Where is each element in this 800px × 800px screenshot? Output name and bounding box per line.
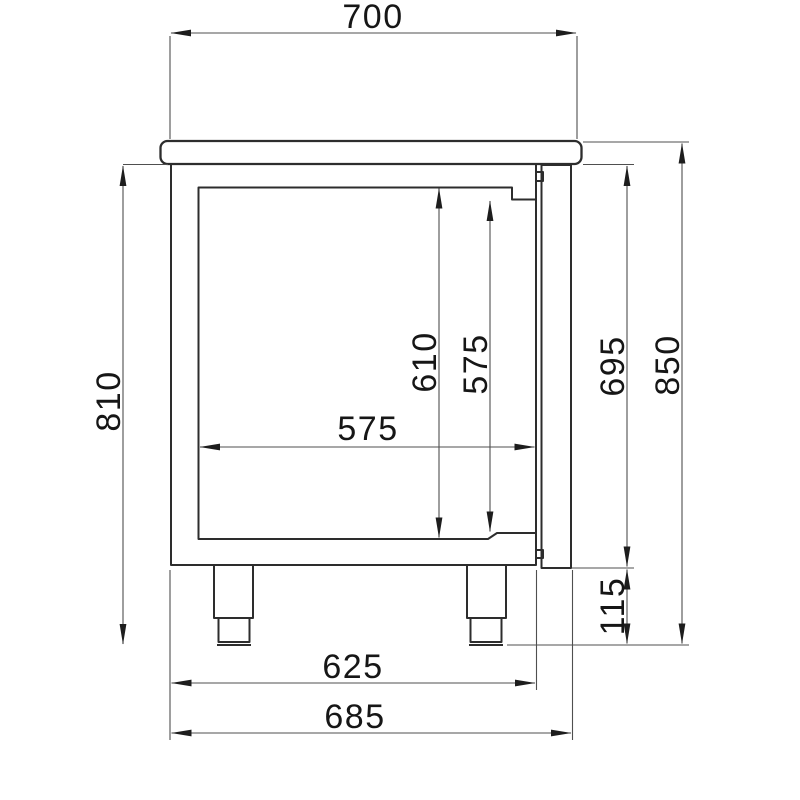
leg-left: [214, 565, 253, 618]
counter-outline: [161, 141, 582, 645]
dimension-labels: 700 810 610 575 575 695 850 115 625 685: [90, 0, 687, 736]
label-door-opening-height: 575: [457, 333, 495, 394]
label-interior-depth: 575: [337, 410, 398, 448]
label-overall-height: 850: [649, 334, 687, 395]
label-door-height: 695: [594, 335, 632, 396]
foot-left: [219, 618, 250, 642]
worktop: [161, 141, 582, 164]
label-overall-depth: 685: [324, 698, 385, 736]
label-body-height: 810: [90, 370, 128, 431]
label-body-depth: 625: [322, 648, 383, 686]
dimension-drawing-svg: 700 810 610 575 575 695 850 115 625 685: [0, 0, 800, 800]
door-panel: [542, 165, 572, 568]
label-foot-height: 115: [594, 577, 632, 636]
label-worktop-width: 700: [342, 0, 403, 36]
label-interior-height: 610: [406, 331, 444, 392]
foot-right: [471, 618, 502, 642]
leg-right: [467, 565, 506, 618]
technical-drawing-canvas: 700 810 610 575 575 695 850 115 625 685: [0, 0, 800, 800]
